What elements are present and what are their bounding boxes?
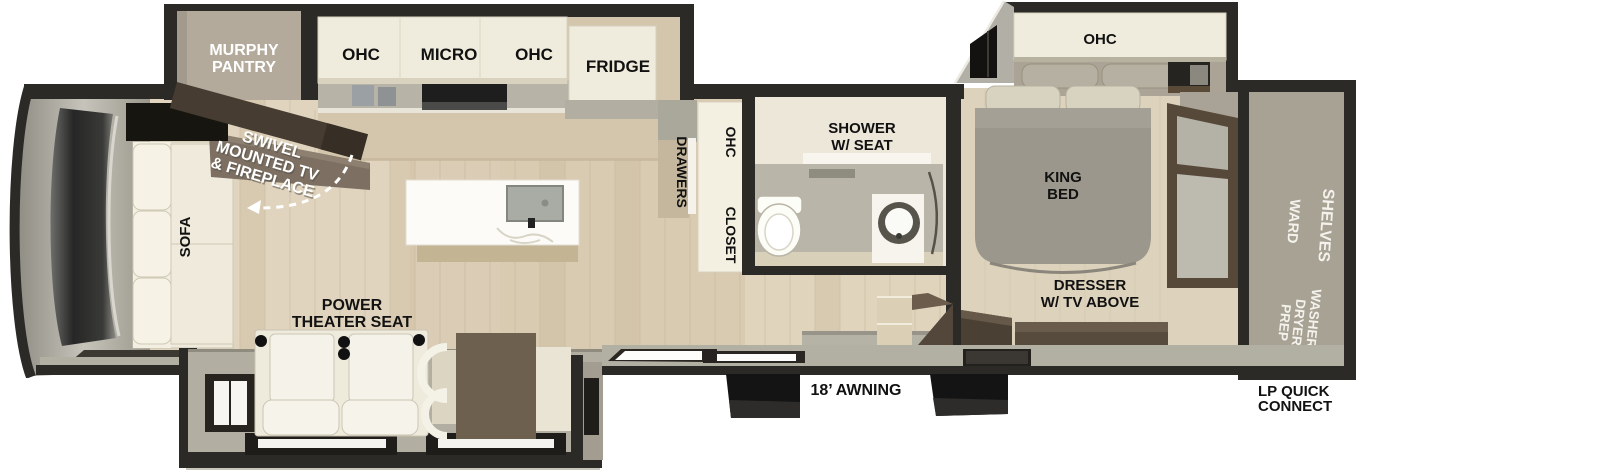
svg-text:MURPHY: MURPHY: [209, 42, 279, 59]
svg-text:SOFA: SOFA: [177, 216, 194, 257]
svg-text:MICRO: MICRO: [421, 45, 478, 64]
svg-text:OHC: OHC: [723, 126, 739, 157]
svg-text:CONNECT: CONNECT: [1258, 398, 1332, 415]
svg-text:W/ TV ABOVE: W/ TV ABOVE: [1041, 294, 1140, 311]
svg-text:OHC: OHC: [1083, 31, 1117, 48]
svg-text:FRIDGE: FRIDGE: [586, 57, 650, 76]
svg-text:18’ AWNING: 18’ AWNING: [811, 382, 902, 399]
svg-text:POWER: POWER: [322, 297, 383, 314]
svg-text:BED: BED: [1047, 186, 1079, 203]
svg-text:SHOWER: SHOWER: [828, 120, 896, 137]
svg-text:DRESSER: DRESSER: [1054, 277, 1127, 294]
svg-text:CLOSET: CLOSET: [723, 207, 739, 264]
svg-text:W/ SEAT: W/ SEAT: [831, 137, 892, 154]
svg-text:OHC: OHC: [342, 45, 380, 64]
svg-text:KING: KING: [1044, 169, 1082, 186]
svg-text:OHC: OHC: [515, 45, 553, 64]
svg-text:DRAWERS: DRAWERS: [674, 136, 690, 208]
svg-text:THEATER SEAT: THEATER SEAT: [292, 314, 413, 331]
svg-text:WARD: WARD: [1283, 199, 1302, 244]
svg-text:PANTRY: PANTRY: [212, 59, 276, 76]
